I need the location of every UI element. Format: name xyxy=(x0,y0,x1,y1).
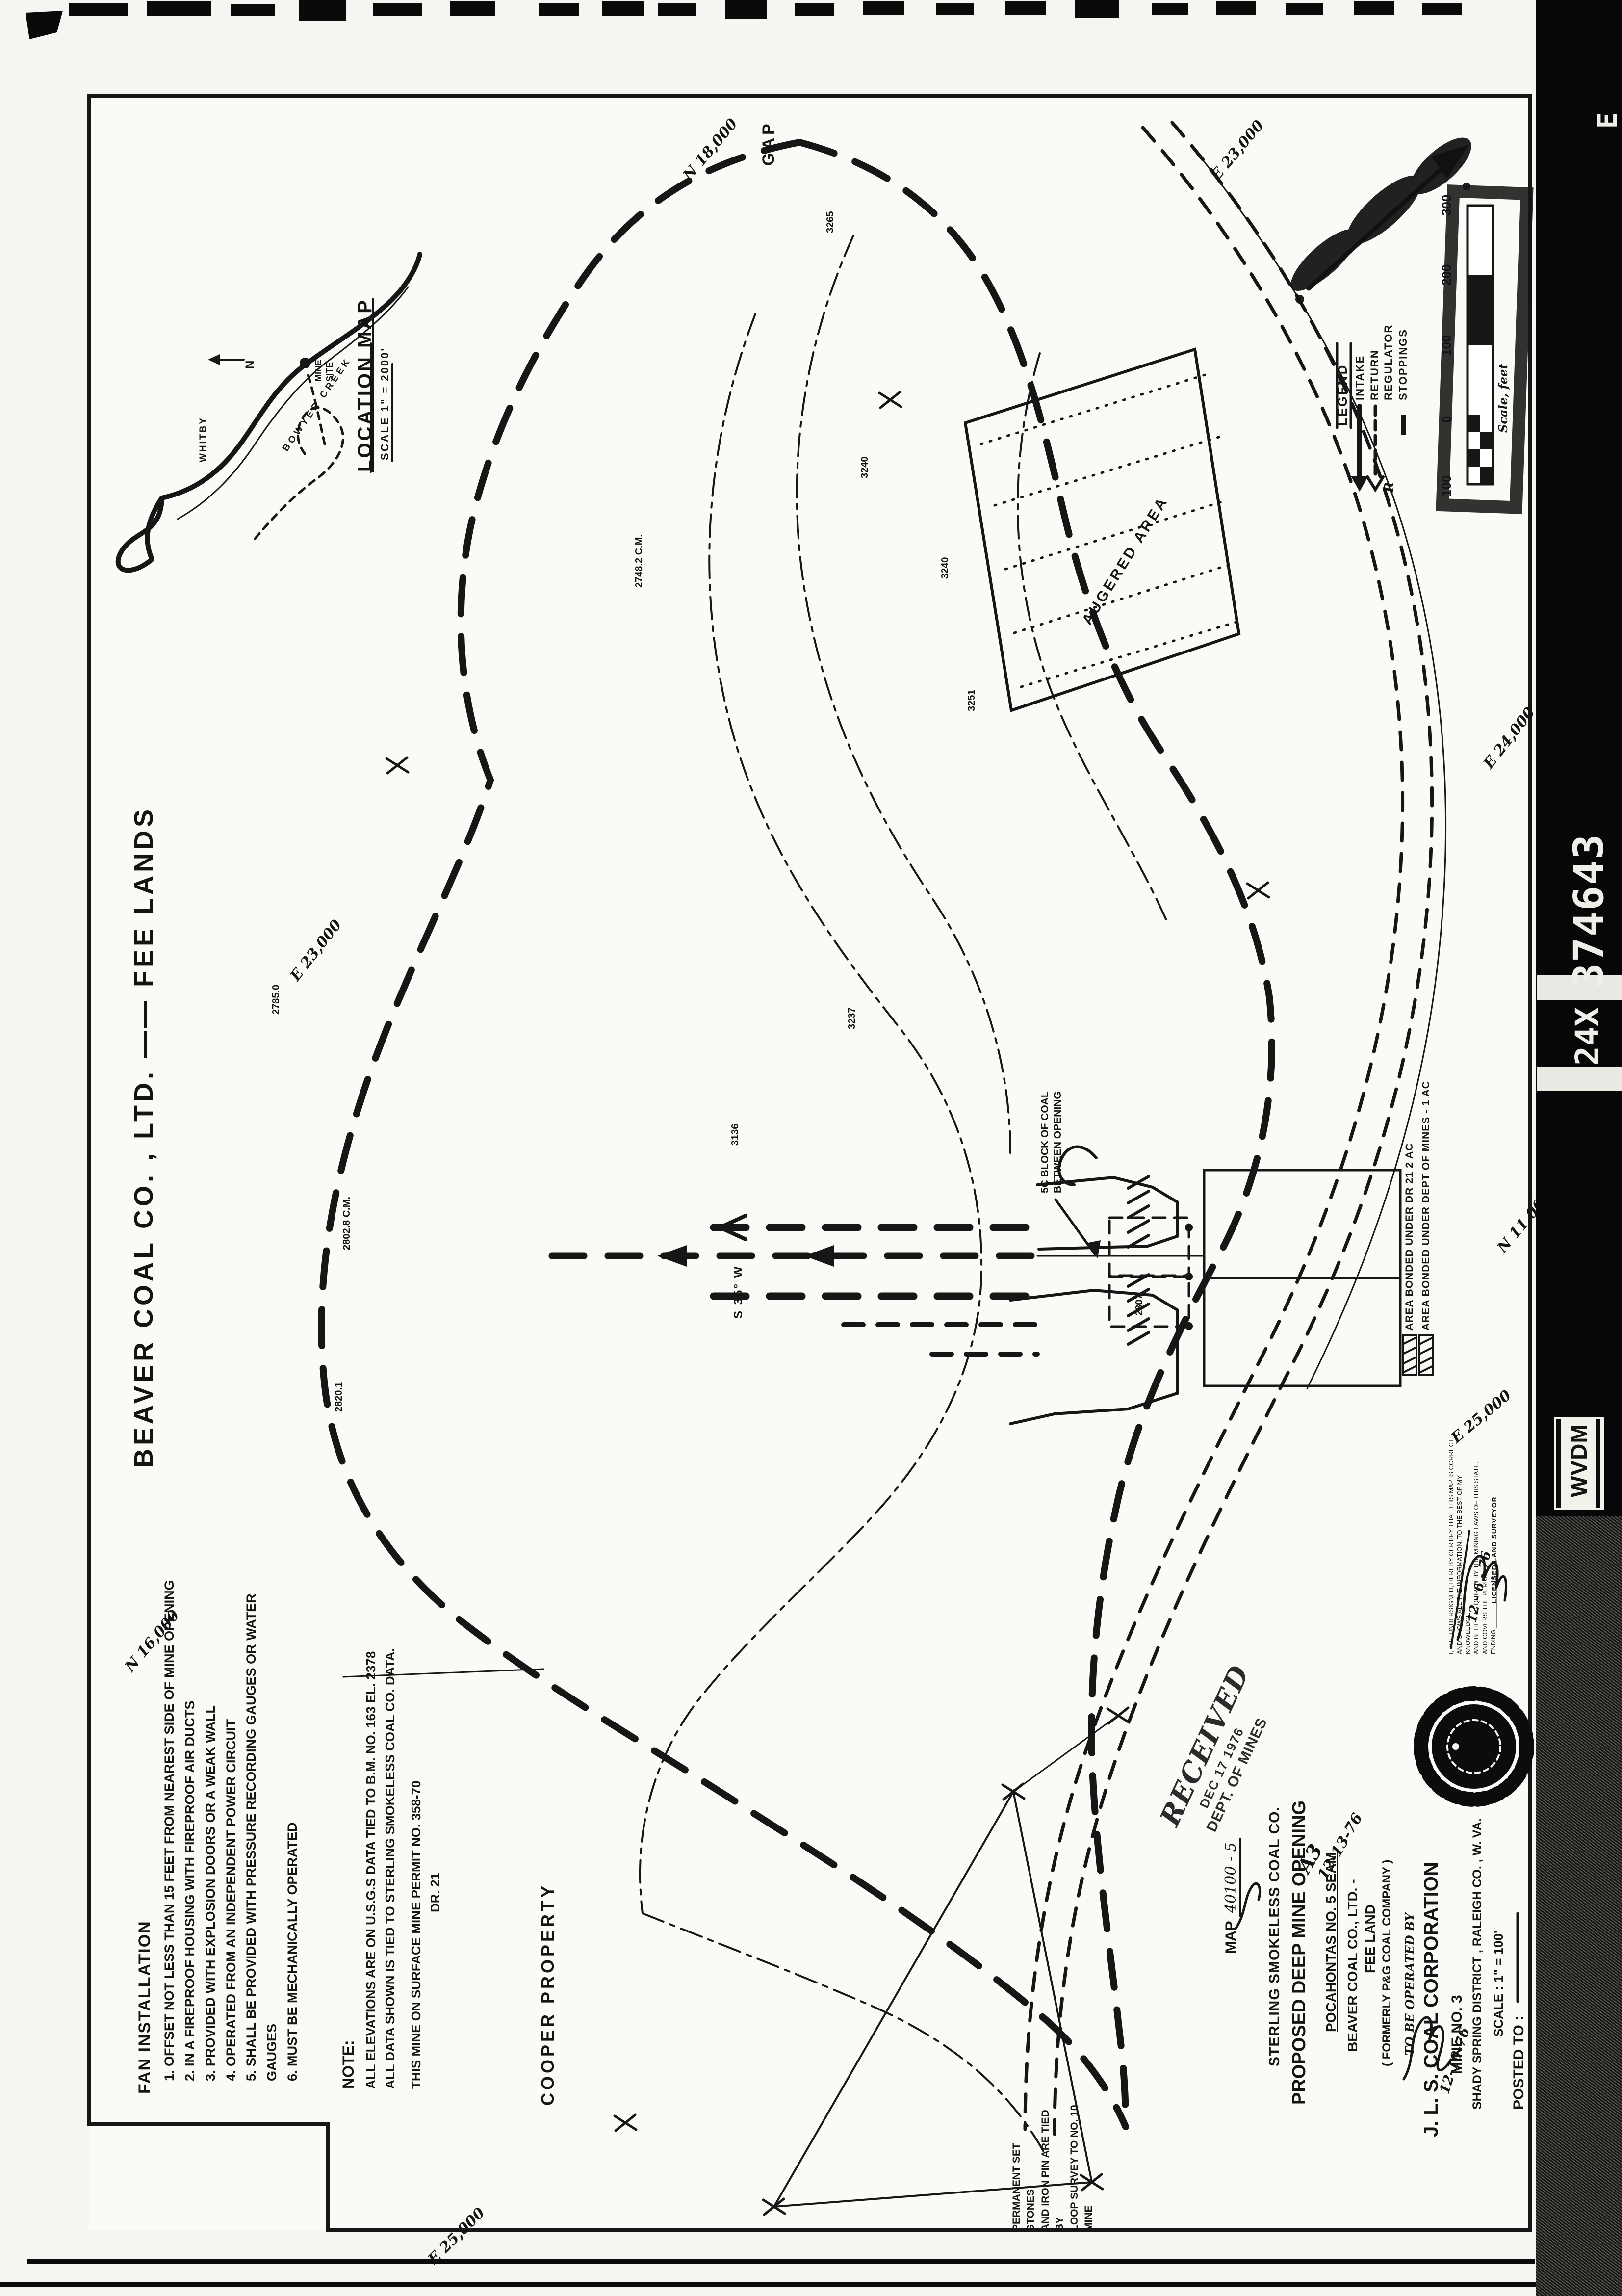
bonded-dom-label: AREA BONDED UNDER DEPT OF MINES - 1 AC xyxy=(1420,1081,1432,1331)
stones-line: AND IRON PIN ARE TIED BY xyxy=(1038,2104,1067,2231)
note-line: DR. 21 xyxy=(426,1520,445,2089)
owner-title: BEAVER COAL CO. , LTD. —— FEE LANDS xyxy=(129,806,159,1468)
stones-line: PERMANENT SET STONES xyxy=(1009,2104,1038,2231)
gap-label: GAP xyxy=(759,121,778,166)
location-map-scale: SCALE 1" = 2000' xyxy=(379,347,391,460)
bond-hatch-strips xyxy=(1128,1176,1149,1344)
title-block-formerly: ( FORMERLY P&G COAL COMPANY ) xyxy=(1380,1860,1394,2066)
bearing-label: S 35° W xyxy=(732,1265,746,1319)
legend-item-intake: INTAKE xyxy=(1354,355,1366,400)
scale-label-200: 200 xyxy=(1439,264,1454,286)
mine-entries xyxy=(552,1216,1204,1354)
film-frame-number: 374643 xyxy=(1565,834,1613,988)
portal-outlines xyxy=(1010,1147,1177,1424)
cert-line: AND COVERS THE PERIOD xyxy=(1481,1434,1489,1654)
fan-item: 2. IN A FIREPROOF HOUSING WITH FIREPROOF… xyxy=(180,1547,201,2094)
spot-elevation: 2802.8 C.M. xyxy=(341,1197,353,1250)
film-frame-letter: E xyxy=(1592,112,1622,129)
scale-label-100L: 100 xyxy=(1439,475,1454,496)
title-block-scale: SCALE : 1" = 100' xyxy=(1491,1931,1506,2037)
film-bottom-lines xyxy=(0,2259,1536,2287)
cooper-property-label: COOPER PROPERTY xyxy=(538,1883,558,2106)
film-noise-texture xyxy=(1536,1516,1622,2296)
map-number-value: 40100 - 5 xyxy=(1222,1838,1241,1917)
intake-arrow-icon xyxy=(804,1245,834,1267)
legend-item-stoppings: STOPPINGS xyxy=(1397,329,1410,400)
fan-item: 5. SHALL BE PROVIDED WITH PRESSURE RECOR… xyxy=(241,1547,283,2094)
bonded-swatches xyxy=(1403,1335,1433,1375)
scale-label-100R: 100 xyxy=(1439,335,1454,356)
stones-line: LOOP SURVEY TO NO. 10 MINE xyxy=(1067,2104,1096,2231)
fan-item: 6. MUST BE MECHANICALLY OPERATED xyxy=(283,1547,303,2094)
film-agency-box-rule xyxy=(1596,1419,1600,1508)
map-number-label: MAP xyxy=(1223,1921,1239,1954)
microfilm-scan: BEAVER COAL CO. , LTD. —— FEE LANDS GAP … xyxy=(0,0,1622,2296)
spot-elevation: 2785.0 xyxy=(271,985,282,1015)
survey-stones-note: PERMANENT SET STONES AND IRON PIN ARE TI… xyxy=(1009,2104,1096,2231)
augered-area-outline xyxy=(965,349,1239,710)
scale-bar xyxy=(1442,191,1527,508)
mine-site-line: MINE xyxy=(313,347,324,382)
film-reduction-label: 24X xyxy=(1569,1007,1606,1066)
spot-elevation: 3265 xyxy=(825,211,836,234)
film-agency-label: WVDM xyxy=(1566,1424,1592,1497)
location-north-label: N xyxy=(243,361,257,369)
block-note: 5C BLOCK OF COAL BETWEEN OPENING xyxy=(1039,1080,1065,1193)
bond-area-rects xyxy=(1109,1170,1400,1386)
spot-elevation: 2748.2 C.M. xyxy=(634,534,645,588)
legend-item-return: RETURN xyxy=(1368,349,1381,400)
owner-line: BEAVER COAL CO., LTD. - xyxy=(1344,1826,1362,2052)
spot-elevation: 2820.1 xyxy=(334,1382,345,1412)
block-note-line: BETWEEN OPENING xyxy=(1052,1080,1064,1193)
title-block-operated-by: TO BE OPERATED BY xyxy=(1403,1913,1417,2056)
scale-label-300: 300 xyxy=(1439,195,1454,216)
fan-item: 4. OPERATED FROM AN INDEPENDENT POWER CI… xyxy=(221,1547,242,2094)
location-map-title: LOCATION MAP xyxy=(354,298,376,472)
spot-elevation: 3240 xyxy=(859,457,871,479)
legend-regulator-symbol: R xyxy=(1382,482,1397,493)
contour-lines xyxy=(640,235,1167,2154)
note-title: NOTE: xyxy=(339,1520,358,2089)
spot-elevation: 3136 xyxy=(730,1124,741,1146)
owner-line: FEE LAND xyxy=(1362,1826,1379,2052)
intake-arrow-icon xyxy=(657,1245,687,1267)
scale-label-0: 0 xyxy=(1439,416,1454,423)
title-block-owner: BEAVER COAL CO., LTD. - FEE LAND xyxy=(1344,1826,1380,2052)
fan-item: 3. PROVIDED WITH EXPLOSION DOORS OR A WE… xyxy=(201,1547,221,2094)
note-line: ALL DATA SHOWN IS TIED TO STERLING SMOKE… xyxy=(381,1520,400,2089)
title-block-company: STERLING SMOKELESS COAL CO. xyxy=(1266,1806,1283,2066)
elevations-note: NOTE: ALL ELEVATIONS ARE ON U.S.G.S DATA… xyxy=(339,1520,445,2089)
surveyor-seal xyxy=(1421,1694,1527,1800)
legend-stoppings-icon xyxy=(1401,415,1406,435)
title-block-posted: POSTED TO : xyxy=(1511,2016,1527,2110)
legend-title: LEGEND xyxy=(1335,364,1350,426)
film-top-edge-marks xyxy=(26,0,1462,39)
title-block-district: SHADY SPRING DISTRICT , RALEIGH CO. , W.… xyxy=(1470,1818,1485,2110)
note-line: ALL ELEVATIONS ARE ON U.S.G.S DATA TIED … xyxy=(361,1520,381,2089)
film-agency-box-rule xyxy=(1556,1419,1561,1508)
title-block-operator: J. L. S. COAL CORPORATION xyxy=(1420,1862,1442,2137)
legend-item-regulator: REGULATOR xyxy=(1382,324,1395,400)
block-note-line: 5C BLOCK OF COAL xyxy=(1039,1080,1052,1193)
note-line: THIS MINE ON SURFACE MINE PERMIT NO. 358… xyxy=(407,1520,426,2089)
spot-elevation: 3240 xyxy=(940,557,951,579)
cert-line: I, THE UNDERSIGNED, HEREBY CERTIFY THAT … xyxy=(1447,1434,1455,1654)
town-label: WHITBY xyxy=(198,417,209,462)
film-white-band xyxy=(1537,1067,1622,1091)
spot-elevation: 3237 xyxy=(847,1008,858,1030)
property-boundary xyxy=(322,142,1272,2127)
spot-elevation: 3251 xyxy=(966,690,978,712)
scale-caption: Scale, feet xyxy=(1496,364,1510,433)
map-number: MAP 40100 - 5 xyxy=(1222,1838,1239,1954)
surveyor-title: LICENSED LAND SURVEYOR xyxy=(1490,1496,1498,1603)
spot-elevation: 2807 xyxy=(1134,1294,1145,1316)
bonded-dr-label: AREA BONDED UNDER DR 21 2 AC xyxy=(1404,1143,1416,1331)
